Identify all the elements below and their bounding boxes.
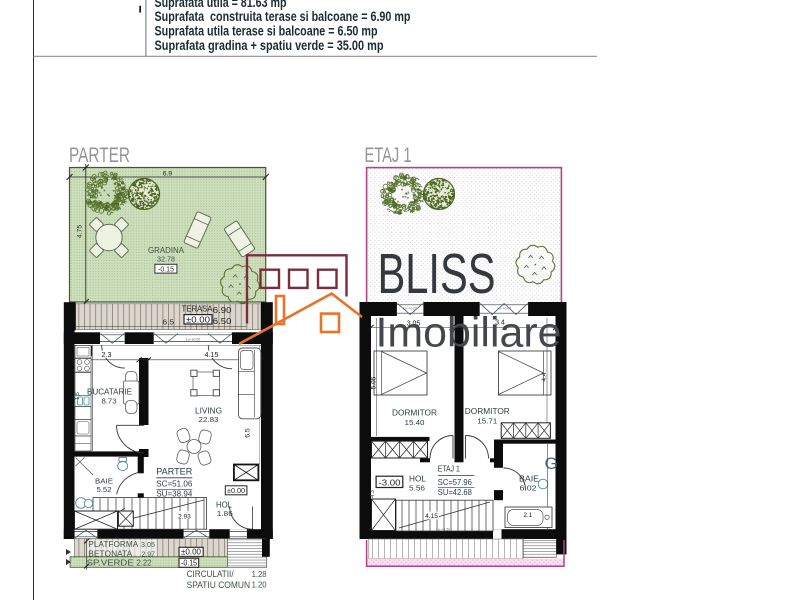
svg-text:2.22: 2.22 [137,558,153,567]
svg-text:1.5: 1.5 [75,392,81,400]
svg-text:BLISS: BLISS [378,242,496,306]
svg-text:1u~±0.00: 1u~±0.00 [186,338,201,342]
svg-text:15.40: 15.40 [405,418,425,427]
svg-text:2.3: 2.3 [102,350,112,359]
svg-text:5.05: 5.05 [370,376,377,389]
svg-text:±0.00: ±0.00 [181,548,202,557]
svg-text:CIRCULATII/: CIRCULATII/ [187,569,234,579]
svg-text:4.15: 4.15 [205,350,219,359]
svg-text:PARTER: PARTER [69,144,130,167]
svg-text:6.90: 6.90 [213,305,232,315]
svg-text:15.71: 15.71 [477,417,497,426]
svg-text:SPATIU COMUN: SPATIU COMUN [187,580,251,590]
svg-text:6.50: 6.50 [213,316,232,326]
svg-text:3.05: 3.05 [141,540,155,549]
svg-text:4.4: 4.4 [541,372,548,381]
svg-text:ETAJ 1: ETAJ 1 [438,464,460,474]
svg-text:1.28: 1.28 [252,570,268,579]
svg-text:2.1: 2.1 [523,512,532,519]
svg-text:5.56: 5.56 [409,484,425,493]
svg-text:Suprafata gradina + spatiu ver: Suprafata gradina + spatiu verde = 35.00… [155,38,384,54]
svg-text:DORMITOR: DORMITOR [465,407,510,416]
svg-text:PLATFORMA: PLATFORMA [88,540,139,549]
svg-text:SU=42.68: SU=42.68 [438,487,472,497]
svg-text:6.5: 6.5 [163,320,175,327]
svg-text:SC=51.06: SC=51.06 [156,479,192,489]
svg-text:SC=57.96: SC=57.96 [438,477,472,487]
svg-text:4.15: 4.15 [425,513,438,520]
svg-text:BAIE: BAIE [519,475,539,484]
svg-text:SU=38.94: SU=38.94 [156,488,192,498]
svg-text:Imobiliare: Imobiliare [376,308,562,355]
svg-text:ETAJ 1: ETAJ 1 [365,144,412,167]
svg-text:6.5: 6.5 [245,428,252,438]
svg-text:SP.VERDE: SP.VERDE [87,557,134,567]
svg-text:±0.00: ±0.00 [186,314,210,324]
svg-text:±0.00: ±0.00 [227,486,245,495]
svg-text:BUCATARIE: BUCATARIE [87,388,132,397]
svg-text:HOL: HOL [409,475,427,484]
svg-text:8.73: 8.73 [102,397,117,406]
svg-text:32.78: 32.78 [157,254,175,263]
svg-text:6.02: 6.02 [520,484,537,493]
svg-text:6.9: 6.9 [163,170,173,177]
svg-text:PARTER: PARTER [156,467,192,477]
svg-text:DORMITOR: DORMITOR [392,409,437,418]
svg-text:-0.15: -0.15 [158,265,174,274]
svg-text:1.20: 1.20 [252,581,268,590]
svg-text:4.3: 4.3 [370,490,376,498]
svg-text:G: G [545,454,558,473]
svg-text:-0.15: -0.15 [181,559,197,568]
svg-text:2.93: 2.93 [178,514,191,521]
svg-text:22.83: 22.83 [199,415,219,424]
svg-text:TERASA: TERASA [182,304,213,314]
svg-text:1u~+4.50: 1u~+4.50 [436,528,450,532]
svg-text:4.75: 4.75 [77,225,84,238]
svg-text:5.52: 5.52 [97,485,112,494]
svg-text:-3.00: -3.00 [379,477,401,487]
